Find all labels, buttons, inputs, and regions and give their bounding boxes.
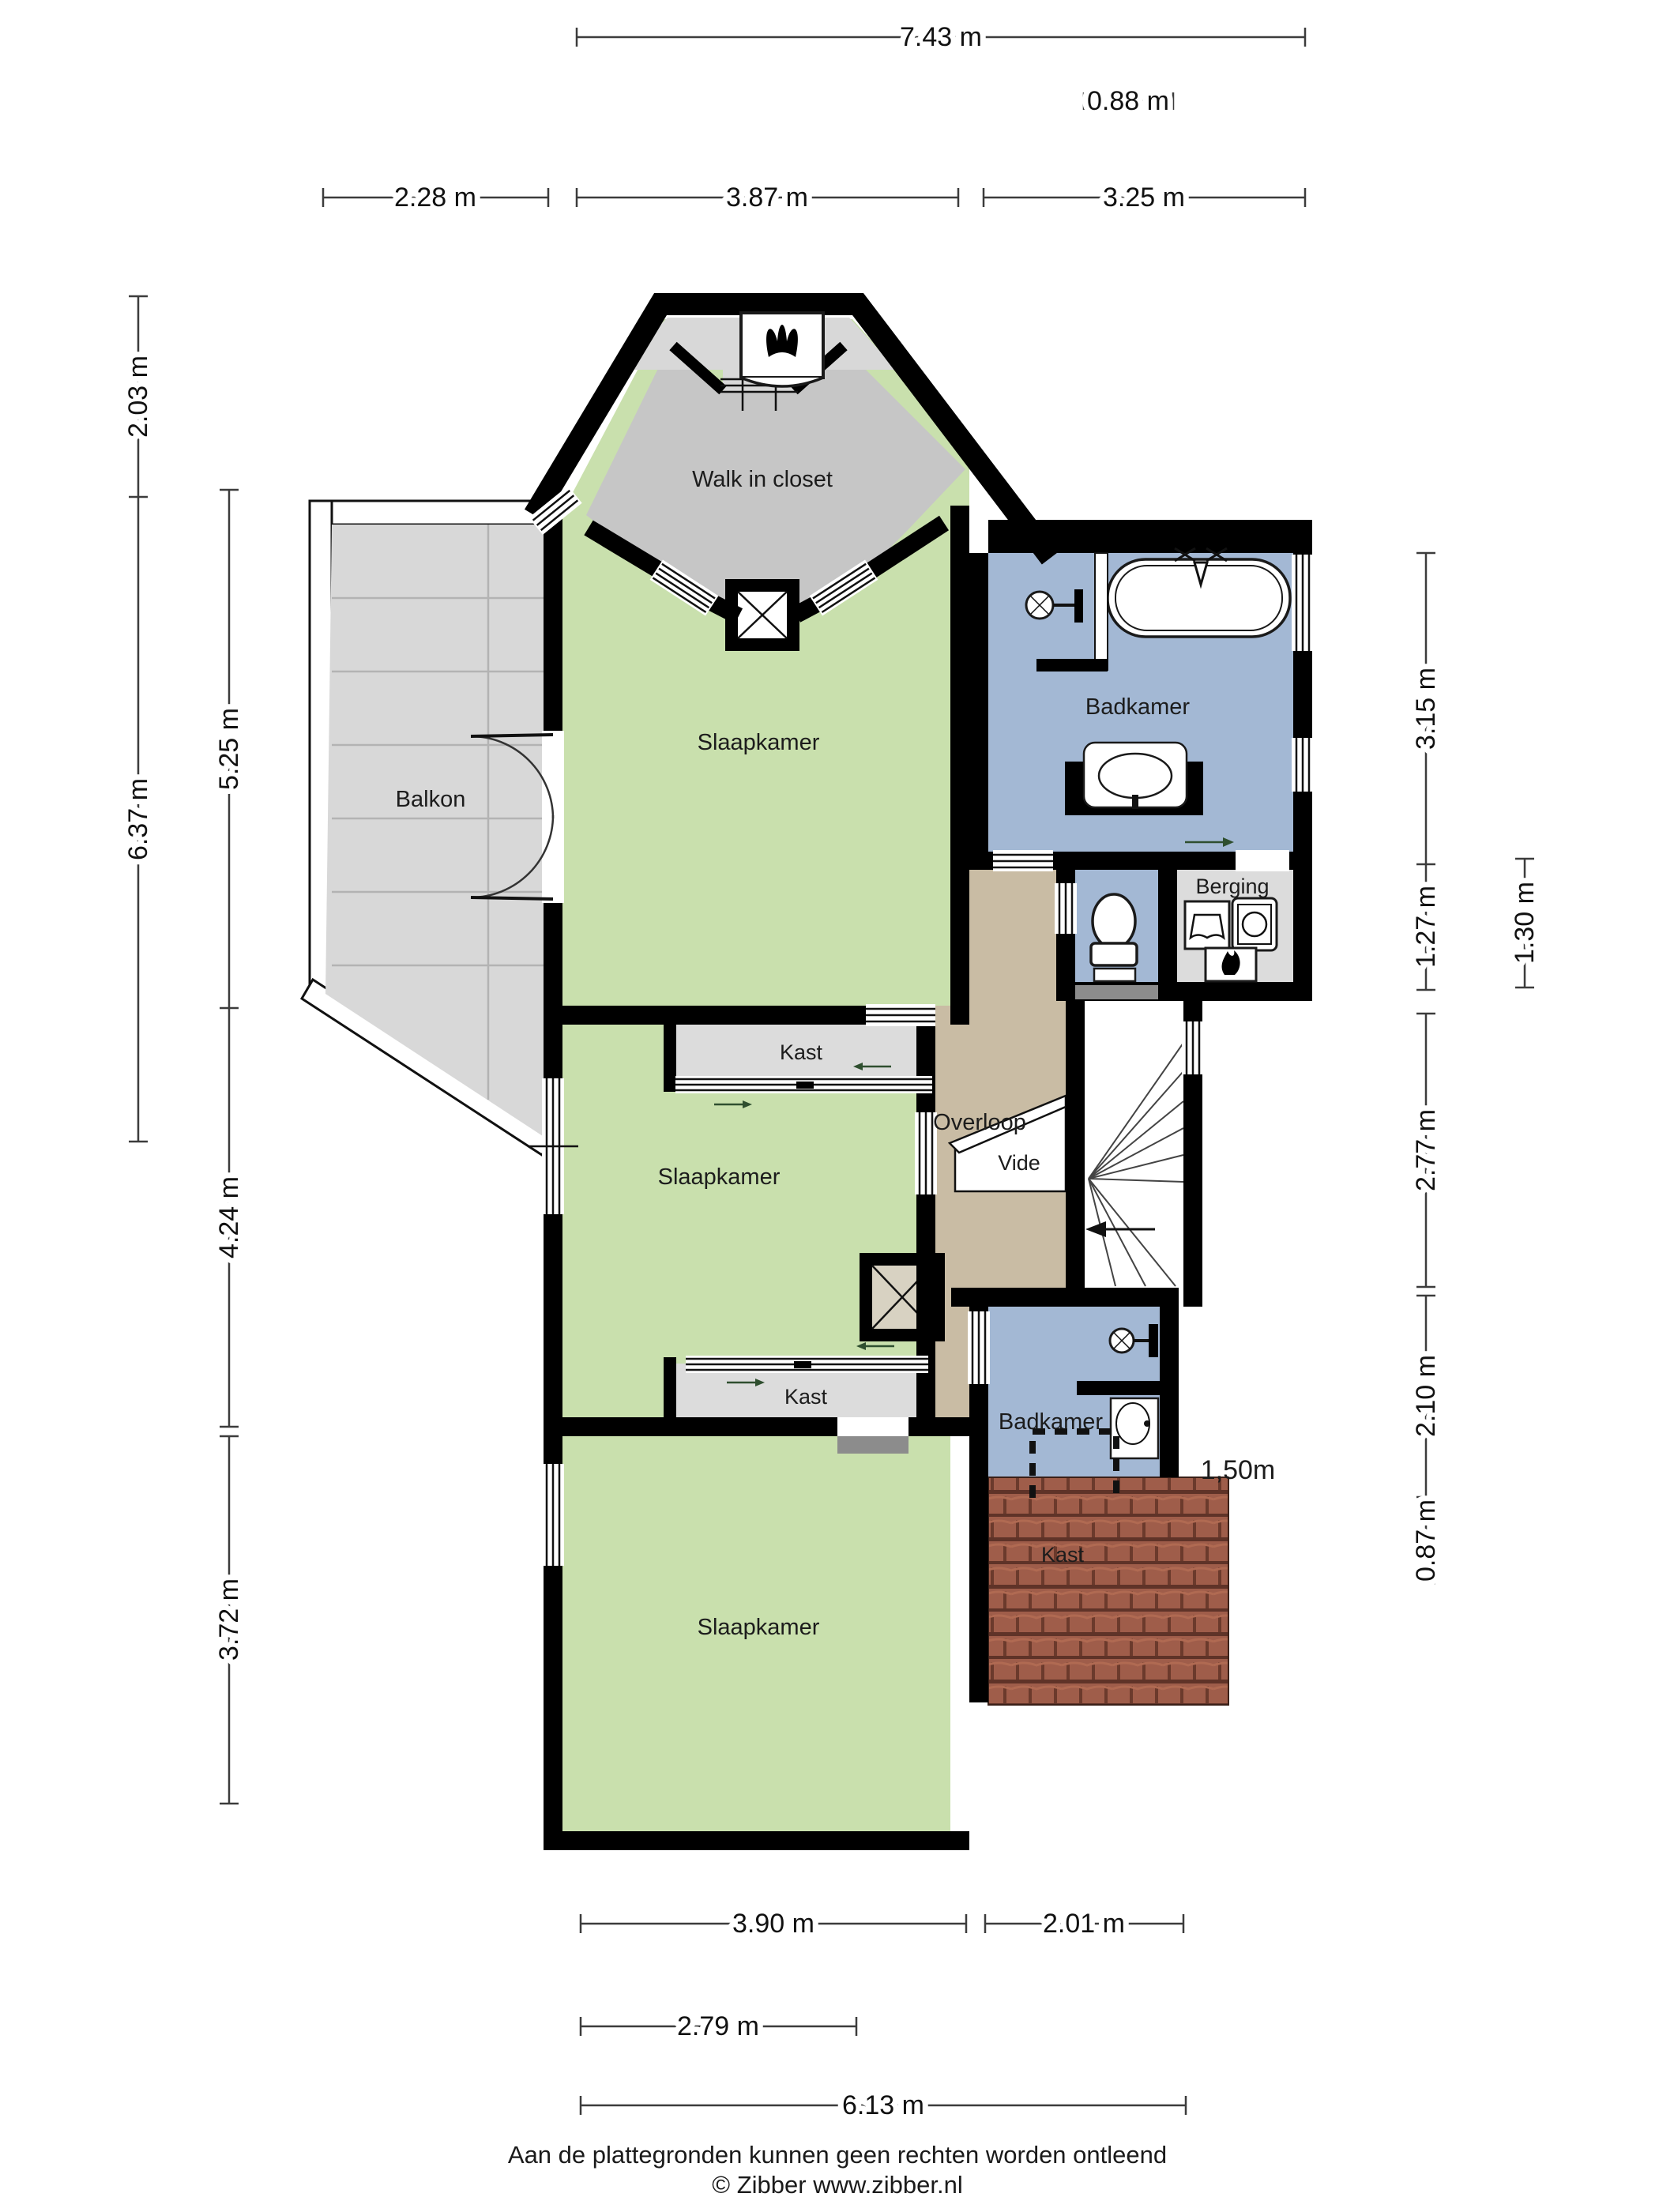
slaapkamer1-east-wall (950, 506, 969, 1025)
badkamer2-door (968, 1311, 990, 1384)
mechanical-ventilation-unit (741, 313, 823, 386)
dim-right-127: 1.27 m (1411, 864, 1441, 990)
dim-top-743: 7.43 m (577, 22, 1305, 52)
label-balkon: Balkon (396, 787, 466, 812)
room-kast-3-roof-tiles (988, 1477, 1228, 1705)
slaapkamer3-sliding-door (837, 1417, 908, 1454)
badkamer1-west-wall (969, 553, 988, 870)
label-badkamer-2: Badkamer (999, 1409, 1104, 1435)
south-wall (544, 1831, 969, 1850)
label-vide: Vide (998, 1151, 1040, 1175)
dim-right-315: 3.15 m (1411, 553, 1441, 864)
toilet-sliding-door (1075, 985, 1158, 999)
stairwell-east-window (1182, 1021, 1204, 1074)
balkon-railing-top (310, 501, 545, 525)
label-kast-3: Kast (1041, 1543, 1085, 1567)
floor-plan: Walk in closet Slaapkamer Badkamer Balko… (0, 0, 1659, 2212)
dim-bottom-279: 2.79 m (581, 2011, 856, 2041)
stair-west-wall (1066, 1001, 1085, 1307)
west-window-slaapkamer3 (542, 1464, 564, 1566)
dim-left-525: 5.25 m (214, 490, 244, 1008)
svg-text:2.28 m: 2.28 m (394, 182, 476, 213)
footer-copyright: © Zibber www.zibber.nl (712, 2171, 962, 2199)
dim-right-210: 2.10 m (1411, 1296, 1441, 1497)
shower2-partition-wall (1077, 1381, 1160, 1395)
balkon-area (302, 501, 553, 1155)
badkamer1-north-wall (988, 520, 1312, 553)
badkamer1-door (993, 850, 1053, 871)
badkamer2-east-wall (1160, 1288, 1179, 1477)
label-kast-1: Kast (780, 1040, 823, 1064)
svg-text:2.10 m: 2.10 m (1411, 1355, 1441, 1437)
washer-icon (1232, 898, 1277, 950)
east-window-badkamer1-b (1292, 738, 1314, 792)
label-slaapkamer-2: Slaapkamer (658, 1164, 781, 1190)
svg-text:1.27 m: 1.27 m (1411, 886, 1441, 968)
shower-stub-wall (1036, 659, 1108, 671)
dim-right-130: 1.30 m (1510, 859, 1540, 987)
dim-bottom-613: 6.13 m (581, 2090, 1186, 2120)
svg-text:2.01 m: 2.01 m (1043, 1909, 1125, 1939)
toilet-icon (1091, 894, 1137, 981)
label-badkamer-1: Badkamer (1085, 694, 1191, 720)
dim-left-424: 4.24 m (214, 1008, 244, 1427)
svg-text:3.25 m: 3.25 m (1103, 182, 1185, 213)
dim-top-228: 2.28 m (323, 182, 548, 213)
svg-text:6.13 m: 6.13 m (842, 2090, 924, 2120)
svg-text:3.72 m: 3.72 m (214, 1578, 244, 1661)
svg-text:2.77 m: 2.77 m (1411, 1109, 1441, 1191)
dim-bottom-390: 3.90 m (581, 1909, 966, 1939)
svg-text:5.25 m: 5.25 m (214, 708, 244, 790)
svg-text:0.88 m: 0.88 m (1087, 86, 1169, 116)
toilet-door (1055, 883, 1077, 934)
dim-left-637: 6.37 m (123, 497, 153, 1142)
dim-bottom-201: 2.01 m (985, 1909, 1183, 1939)
slaapkamer1-door (866, 1004, 935, 1026)
dim-left-372: 3.72 m (214, 1436, 244, 1804)
label-walk-in-closet: Walk in closet (692, 467, 833, 492)
svg-text:1.30 m: 1.30 m (1510, 882, 1540, 964)
laundry-unit-icon (1185, 901, 1229, 949)
label-overloop: Overloop (933, 1110, 1026, 1135)
bathtub (1108, 548, 1290, 637)
label-berging: Berging (1195, 875, 1269, 898)
svg-text:2.03 m: 2.03 m (123, 355, 153, 438)
shower-sink-2 (1111, 1398, 1158, 1458)
dim-top-325: 3.25 m (984, 182, 1305, 213)
svg-text:3.90 m: 3.90 m (732, 1909, 814, 1939)
shower-glass-partition (1095, 553, 1108, 670)
dim-right-277: 2.77 m (1411, 1014, 1441, 1287)
svg-text:2.79 m: 2.79 m (677, 2011, 759, 2041)
stairwell-floor (1085, 1001, 1183, 1288)
vanity-sink-1 (1065, 743, 1203, 815)
footer: Aan de plattegronden kunnen geen rechten… (508, 2141, 1167, 2199)
mv-unit-icon (766, 325, 798, 357)
kast1-wall-stub (664, 1025, 676, 1092)
toilet-berging-wall (1158, 852, 1177, 1001)
dim-left-203: 2.03 m (123, 296, 153, 497)
svg-text:6.37 m: 6.37 m (123, 778, 153, 860)
sink-basin-icon (1099, 754, 1172, 798)
dim-right-087: 0.87 m (1411, 1497, 1441, 1583)
label-headroom: 1,50m (1201, 1455, 1276, 1485)
svg-text:3.87 m: 3.87 m (726, 182, 808, 213)
east-window-badkamer1-a (1292, 555, 1314, 651)
dim-top-387: 3.87 m (577, 182, 958, 213)
heater-icon (1206, 948, 1256, 981)
label-slaapkamer-3: Slaapkamer (698, 1615, 820, 1640)
kast2-wall-stub (664, 1357, 676, 1417)
svg-text:7.43 m: 7.43 m (900, 22, 982, 52)
svg-text:4.24 m: 4.24 m (214, 1176, 244, 1258)
label-kast-2: Kast (784, 1385, 828, 1409)
footer-disclaimer: Aan de plattegronden kunnen geen rechten… (508, 2141, 1167, 2169)
balkon-deck (325, 525, 545, 1138)
svg-text:3.15 m: 3.15 m (1411, 668, 1441, 750)
svg-text:0.87 m: 0.87 m (1411, 1499, 1441, 1582)
dim-top-088: 0.88 m (1084, 86, 1173, 116)
label-slaapkamer-1: Slaapkamer (698, 730, 820, 755)
